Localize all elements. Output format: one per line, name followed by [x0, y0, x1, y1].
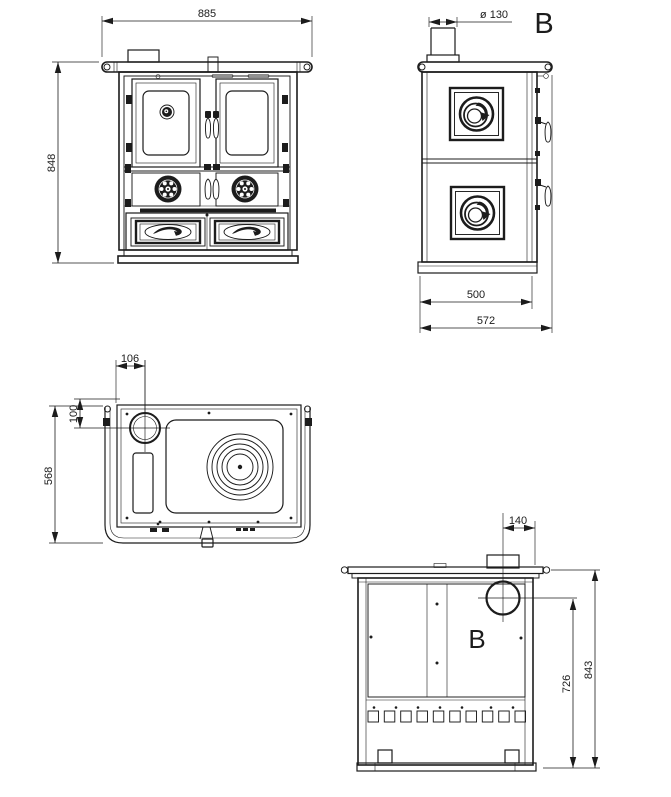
door-handle-lower-left: [205, 179, 211, 199]
air-vent-rosette-left: [155, 176, 182, 203]
ash-lip-bar: [140, 209, 276, 213]
dimension-height: 848: [46, 62, 114, 263]
dim-label-total-depth: 572: [477, 315, 495, 327]
side-panel-upper: [450, 88, 503, 140]
thermometer-icon: [160, 105, 174, 119]
dim-label-total-height: 843: [583, 661, 595, 679]
swirl-ornament-lower: [461, 197, 494, 230]
oven-door-panel: [143, 91, 189, 155]
side-view: ø 130 B: [418, 8, 554, 333]
stove-body-rear: [358, 578, 533, 765]
dim-label-flue-diameter: ø 130: [480, 9, 508, 21]
dim-label-flue-offset: 140: [509, 515, 527, 527]
fire-door-glass: [226, 91, 268, 155]
air-vent-rosette-right: [232, 176, 259, 203]
drawer-band: [126, 213, 288, 250]
flue-collar-front: [128, 50, 159, 62]
dim-label-depth: 568: [43, 467, 55, 485]
foot-left: [378, 750, 392, 763]
mid-rail: [124, 164, 290, 173]
dim-label-body-depth: 500: [467, 289, 485, 301]
technical-drawing-sheet: 885 848: [0, 0, 671, 797]
drawer-panel-left: [131, 218, 205, 246]
foot-right: [505, 750, 519, 763]
stove-dimension-drawing: 885 848: [0, 0, 671, 797]
section-label-b: B: [534, 8, 553, 40]
door-handle-upper-left: [205, 111, 211, 138]
dim-label-width: 885: [198, 8, 216, 20]
section-label-b-rear: B: [468, 624, 485, 654]
dimension-depth: 568: [43, 406, 103, 543]
top-view: 106 100 568: [43, 353, 312, 547]
plinth-front: [118, 250, 298, 263]
stove-body-front: [119, 72, 297, 250]
rear-view: 140 B: [341, 513, 600, 771]
flue-outlet-rear: [478, 560, 577, 622]
worktop-rail-front: [102, 50, 312, 72]
dimension-body-depth: 500: [420, 276, 532, 309]
door-handle-upper-right: [213, 111, 219, 138]
dimension-flue-center-height: 726: [543, 599, 600, 768]
oven-door-left: [132, 79, 200, 167]
dimension-flue-diameter: ø 130: [429, 9, 512, 27]
side-door-handle-lower: [545, 186, 551, 206]
plinth-side: [418, 262, 537, 273]
dimension-flue-offset-x: 106: [116, 353, 145, 416]
dim-label-flue-offset-y: 100: [68, 405, 80, 423]
drawer-panel-right: [210, 218, 284, 246]
side-door-handle-upper: [545, 122, 551, 142]
vent-holes-row: [368, 706, 526, 722]
cook-plate: [166, 420, 283, 513]
dim-label-flue-center-height: 726: [561, 675, 573, 693]
vent-band: [124, 173, 290, 212]
dim-label-height: 848: [46, 154, 58, 172]
dim-label-flue-offset-x: 106: [121, 353, 139, 365]
firebox-slot-top: [133, 453, 153, 513]
side-panel-lower: [451, 187, 504, 239]
front-view: 885 848: [46, 8, 312, 263]
dimension-total-height: 843: [551, 570, 600, 768]
fire-door-right: [216, 79, 278, 167]
base-rear: [357, 750, 536, 771]
worktop-rail-side: [418, 62, 552, 72]
flue-pipe-side: [427, 28, 459, 62]
dimension-flue-offset-y: 100: [68, 399, 120, 428]
swirl-ornament-upper: [460, 98, 493, 131]
door-handle-lower-right: [213, 179, 219, 199]
